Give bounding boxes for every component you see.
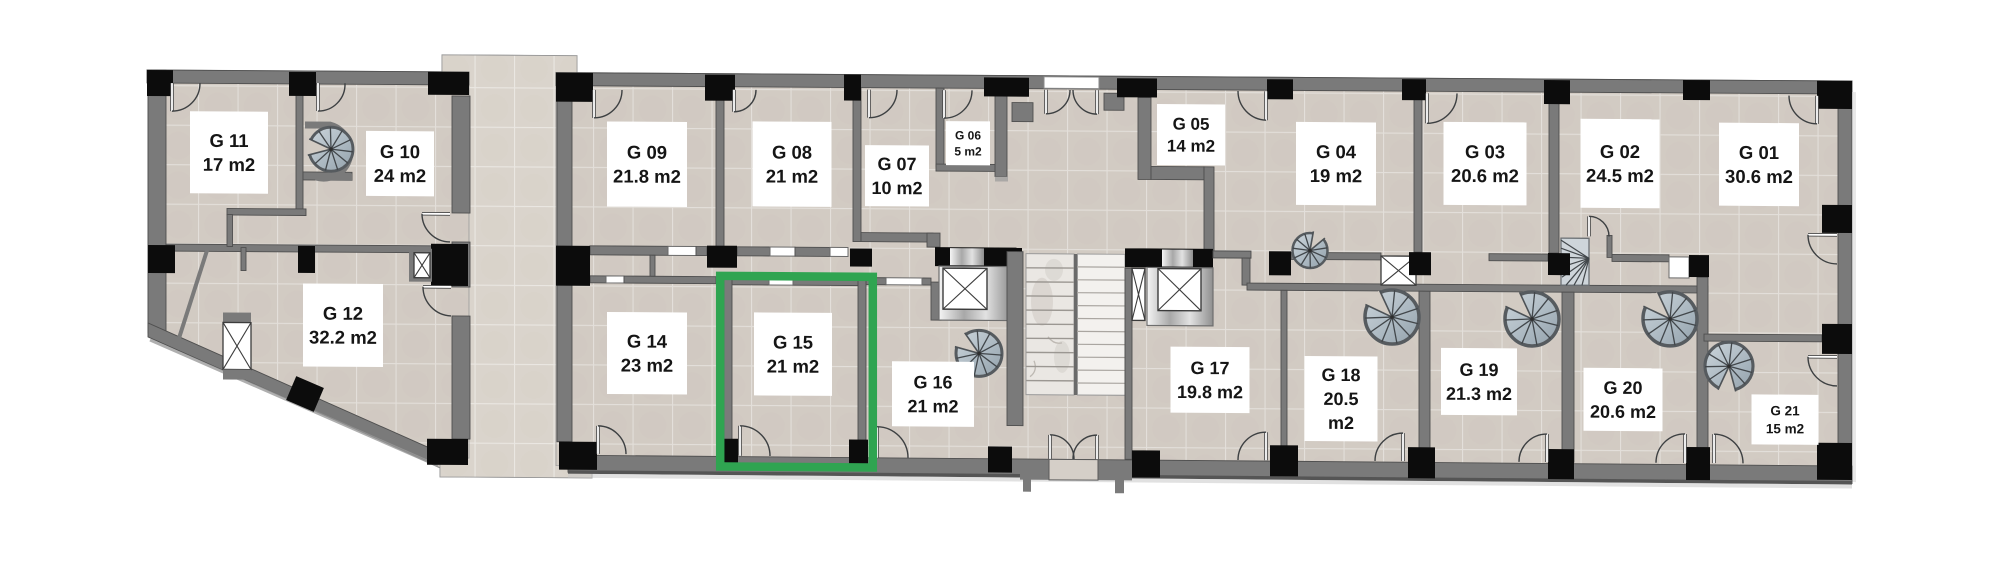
svg-text:20.5: 20.5: [1323, 389, 1358, 409]
svg-text:G 21: G 21: [1770, 403, 1800, 418]
svg-text:15 m2: 15 m2: [1766, 421, 1804, 436]
svg-text:G 08: G 08: [772, 141, 812, 162]
svg-text:21.3 m2: 21.3 m2: [1446, 384, 1512, 404]
svg-text:G 15: G 15: [773, 331, 813, 352]
svg-text:G 09: G 09: [627, 142, 667, 163]
svg-text:G 06: G 06: [955, 128, 981, 142]
svg-text:20.6 m2: 20.6 m2: [1590, 402, 1656, 422]
svg-text:G 19: G 19: [1459, 360, 1498, 380]
svg-text:23 m2: 23 m2: [621, 355, 673, 376]
svg-text:21 m2: 21 m2: [907, 396, 958, 416]
svg-text:G 10: G 10: [380, 141, 420, 162]
svg-text:G 03: G 03: [1465, 141, 1505, 162]
svg-text:20.6 m2: 20.6 m2: [1451, 165, 1519, 186]
svg-text:24 m2: 24 m2: [374, 165, 426, 186]
svg-text:5 m2: 5 m2: [954, 144, 982, 158]
svg-text:19 m2: 19 m2: [1310, 165, 1362, 186]
svg-text:21 m2: 21 m2: [767, 355, 819, 376]
svg-text:24.5 m2: 24.5 m2: [1586, 165, 1654, 186]
svg-text:17 m2: 17 m2: [203, 154, 255, 175]
svg-text:19.8 m2: 19.8 m2: [1177, 382, 1243, 402]
svg-text:30.6 m2: 30.6 m2: [1725, 166, 1793, 187]
svg-text:G 18: G 18: [1321, 365, 1360, 385]
svg-text:G 17: G 17: [1190, 358, 1229, 378]
svg-text:G 12: G 12: [323, 303, 363, 324]
svg-text:G 20: G 20: [1603, 378, 1642, 398]
svg-text:G 14: G 14: [627, 331, 668, 352]
svg-text:G 01: G 01: [1739, 142, 1779, 163]
svg-text:G 11: G 11: [209, 130, 248, 151]
svg-text:G 16: G 16: [913, 372, 952, 392]
svg-text:G 07: G 07: [877, 154, 916, 174]
svg-text:G 02: G 02: [1600, 141, 1640, 162]
svg-text:G 04: G 04: [1316, 141, 1357, 162]
svg-text:G 05: G 05: [1173, 115, 1210, 134]
svg-text:21.8 m2: 21.8 m2: [613, 165, 681, 186]
svg-text:32.2 m2: 32.2 m2: [309, 326, 377, 347]
svg-text:14 m2: 14 m2: [1167, 137, 1215, 156]
svg-text:m2: m2: [1328, 413, 1354, 433]
svg-text:10 m2: 10 m2: [871, 178, 922, 198]
svg-text:21 m2: 21 m2: [766, 165, 818, 186]
